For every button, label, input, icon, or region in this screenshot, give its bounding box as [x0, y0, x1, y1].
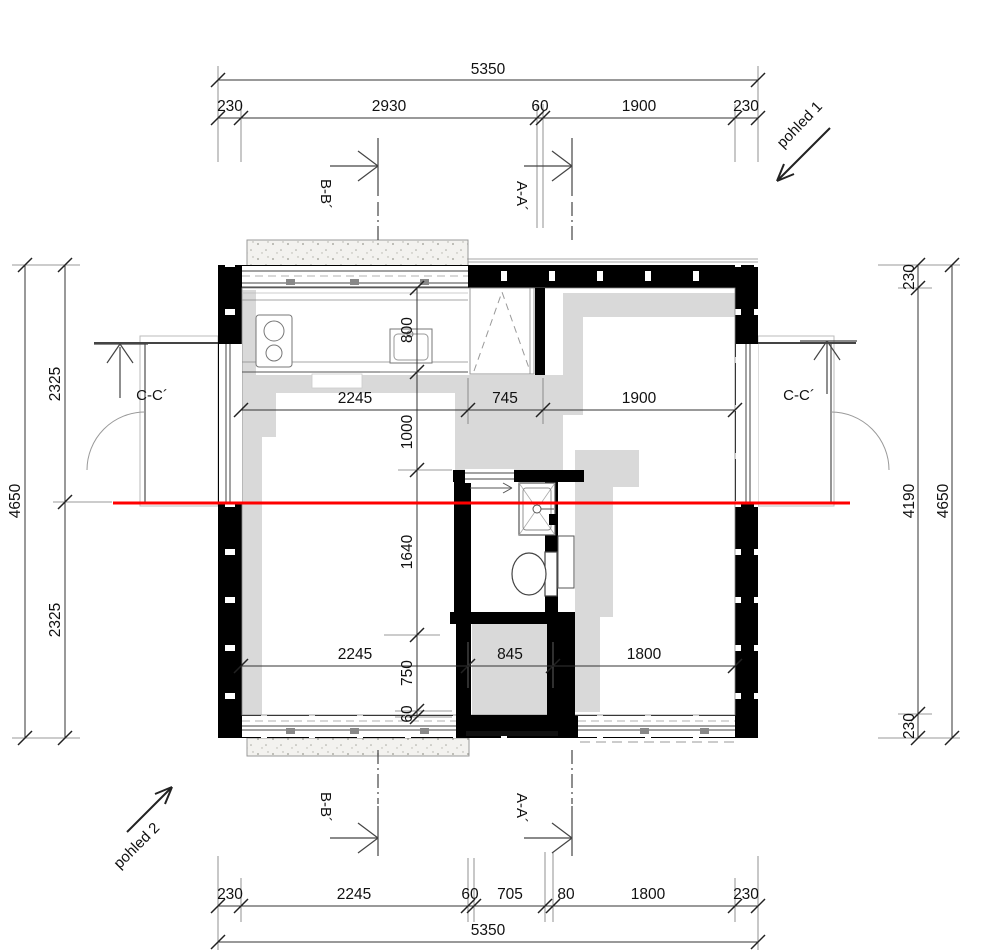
dim-bot-60: 60 — [461, 886, 479, 903]
dim-top-2930: 2930 — [372, 98, 407, 115]
section-aa-top — [524, 138, 572, 242]
floor-plan-canvas: 5350 230 2930 60 1900 230 230 2245 60 70… — [0, 0, 1000, 952]
dim-right-total: 4650 — [935, 483, 952, 518]
dim-right-230b: 230 — [901, 713, 918, 739]
dim-top-230l: 230 — [217, 98, 243, 115]
section-label-bb-top: B-B´ — [317, 179, 334, 209]
dim-right-230t: 230 — [901, 264, 918, 290]
dim-top-1900: 1900 — [622, 98, 657, 115]
dim-left-2325a: 2325 — [47, 367, 64, 401]
section-aa-bottom — [524, 750, 572, 856]
dim-bot-705: 705 — [497, 886, 523, 903]
dim-int-2245l: 2245 — [338, 646, 372, 663]
section-label-cc-left: C-C´ — [136, 387, 168, 404]
dim-top-230r: 230 — [733, 98, 759, 115]
dim-right-4190: 4190 — [901, 483, 918, 518]
plumbing-stack — [549, 514, 557, 525]
section-label-bb-bottom: B-B´ — [317, 792, 334, 822]
right-wall-door-opening — [736, 344, 758, 502]
cooktop-icon — [256, 315, 292, 367]
section-bb-top — [330, 138, 378, 242]
right-door-swing-arc — [831, 412, 889, 470]
dim-int-2245u: 2245 — [338, 390, 372, 407]
dim-bottom-total: 5350 — [471, 922, 506, 939]
right-entry-landing — [758, 336, 889, 506]
view-label-1: pohled 1 — [774, 98, 826, 151]
dim-left-2325b: 2325 — [47, 603, 64, 637]
dim-int-845: 845 — [497, 646, 523, 663]
section-label-aa-bottom: A-A´ — [513, 793, 530, 823]
dim-int-745: 745 — [492, 390, 518, 407]
dim-int-1000: 1000 — [399, 414, 416, 449]
washbasin-icon — [519, 483, 555, 535]
left-dimensions: 4650 2325 2325 — [7, 258, 112, 745]
bottom-right-window — [578, 716, 738, 742]
dim-int-1640: 1640 — [399, 534, 416, 569]
section-bb-bottom — [330, 750, 378, 856]
left-wall-door-opening — [219, 344, 242, 502]
entry-door-leaf — [466, 731, 558, 736]
entry-threshold — [466, 715, 572, 728]
dim-bot-2245: 2245 — [337, 886, 371, 903]
left-entry-landing — [87, 336, 218, 506]
right-dimensions: 230 4190 230 4650 — [878, 258, 960, 745]
dim-bot-230r: 230 — [733, 886, 759, 903]
section-label-cc-right: C-C´ — [783, 387, 815, 404]
dim-int-1900: 1900 — [622, 390, 657, 407]
bottom-dimensions: 230 2245 60 705 80 1800 230 5350 — [211, 852, 765, 950]
dim-top-60: 60 — [531, 98, 549, 115]
dim-int-750: 750 — [399, 660, 416, 686]
dim-top-total: 5350 — [471, 61, 506, 78]
top-dimensions: 5350 230 2930 60 1900 230 — [211, 61, 765, 228]
duct-shaft — [558, 536, 574, 588]
toilet-icon — [512, 552, 557, 596]
dim-bot-230l: 230 — [217, 886, 243, 903]
dishwasher-front — [312, 374, 362, 388]
wardrobe — [470, 288, 534, 374]
dim-left-total: 4650 — [7, 483, 24, 518]
dim-int-60: 60 — [399, 705, 416, 723]
section-label-aa-top: A-A´ — [513, 181, 530, 211]
bottom-left-window — [242, 716, 468, 737]
dim-int-800: 800 — [399, 317, 416, 343]
left-door-swing-arc — [87, 412, 145, 470]
floor-plan-page: 5350 230 2930 60 1900 230 230 2245 60 70… — [0, 0, 1000, 952]
sliding-door-arrow-icon — [470, 483, 512, 493]
view-label-2: pohled 2 — [110, 819, 163, 872]
dim-int-1800: 1800 — [627, 646, 662, 663]
dim-bot-80: 80 — [557, 886, 575, 903]
dim-bot-1800: 1800 — [631, 886, 666, 903]
kitchen-counter — [242, 293, 468, 388]
top-kitchen-window — [242, 266, 468, 287]
